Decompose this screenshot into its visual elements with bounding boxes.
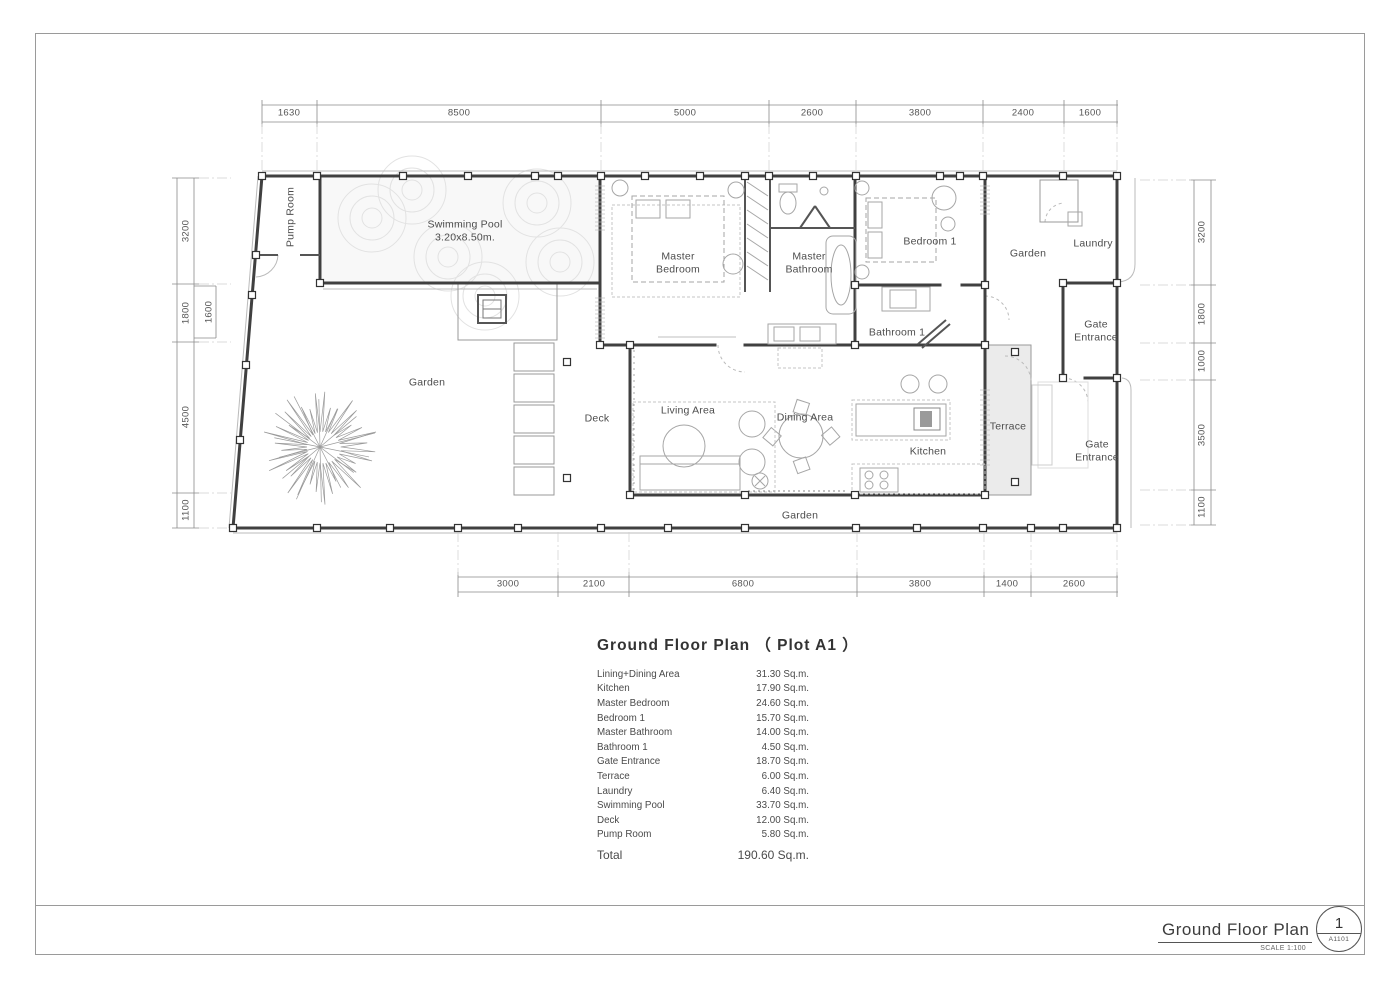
dim-top-0: 1630 xyxy=(278,108,300,119)
dim-left-3: 4500 xyxy=(181,406,192,428)
table-row: Lining+Dining Area31.30 Sq.m. xyxy=(597,667,809,682)
dim-right-0: 3200 xyxy=(1197,221,1208,243)
drawing-sheet: Pump Room Swimming Pool 3.20x8.50m. Mast… xyxy=(0,0,1400,990)
room-label-kitchen: Kitchen xyxy=(910,446,946,459)
room-label-deck: Deck xyxy=(585,413,610,426)
table-total-row: Total 190.60 Sq.m. xyxy=(597,845,809,865)
dim-bottom-5: 2600 xyxy=(1063,579,1085,590)
room-label-living-area: Living Area xyxy=(661,405,715,418)
area-table: Ground Floor Plan （ Plot A1 ） Lining+Din… xyxy=(597,633,809,865)
tree-drawing xyxy=(264,392,376,505)
dim-bottom-0: 3000 xyxy=(497,579,519,590)
dim-top-1: 8500 xyxy=(448,108,470,119)
table-row: Master Bedroom24.60 Sq.m. xyxy=(597,696,809,711)
dim-top-6: 1600 xyxy=(1079,108,1101,119)
dim-right-1: 1800 xyxy=(1197,303,1208,325)
room-label-garden-left: Garden xyxy=(409,377,445,390)
dim-top-5: 2400 xyxy=(1012,108,1034,119)
title-block: Ground Floor Plan SCALE 1:100 1 A1101 xyxy=(1158,906,1362,952)
deck-stepping-stones xyxy=(514,343,554,495)
room-label-terrace: Terrace xyxy=(990,421,1026,434)
dim-bottom-3: 3800 xyxy=(909,579,931,590)
table-row: Master Bathroom14.00 Sq.m. xyxy=(597,725,809,740)
dim-right-3: 3500 xyxy=(1197,424,1208,446)
dim-top-3: 2600 xyxy=(801,108,823,119)
table-row: Terrace6.00 Sq.m. xyxy=(597,769,809,784)
detail-bubble: 1 A1101 xyxy=(1316,906,1362,952)
sheet-title: Ground Floor Plan xyxy=(1158,920,1312,943)
dim-left-0: 3200 xyxy=(181,220,192,242)
table-row: Laundry6.40 Sq.m. xyxy=(597,784,809,799)
sheet-number: A1101 xyxy=(1317,934,1361,951)
table-row: Bedroom 115.70 Sq.m. xyxy=(597,711,809,726)
table-row: Kitchen17.90 Sq.m. xyxy=(597,682,809,697)
room-label-bedroom-1: Bedroom 1 xyxy=(903,236,956,249)
dim-right-2: 1000 xyxy=(1197,350,1208,372)
room-label-pump-room: Pump Room xyxy=(285,187,298,247)
room-label-bathroom-1: Bathroom 1 xyxy=(869,327,925,340)
table-row: Gate Entrance18.70 Sq.m. xyxy=(597,755,809,770)
area-table-rows: Lining+Dining Area31.30 Sq.m. Kitchen17.… xyxy=(597,667,809,842)
dim-bottom-2: 6800 xyxy=(732,579,754,590)
sheet-scale: SCALE 1:100 xyxy=(1260,945,1312,952)
table-row: Pump Room5.80 Sq.m. xyxy=(597,828,809,843)
dim-top-4: 3800 xyxy=(909,108,931,119)
dim-bottom-1: 2100 xyxy=(583,579,605,590)
dim-top-2: 5000 xyxy=(674,108,696,119)
room-label-dining-area: Dining Area xyxy=(777,412,833,425)
planter xyxy=(458,283,557,340)
room-label-master-bathroom: Master Bathroom xyxy=(785,250,832,275)
room-label-garden-upper-right: Garden xyxy=(1010,248,1046,261)
dim-bottom-4: 1400 xyxy=(996,579,1018,590)
room-label-gate-entrance-lower: Gate Entrance xyxy=(1075,438,1119,463)
table-row: Deck12.00 Sq.m. xyxy=(597,813,809,828)
dim-left-2: 1600 xyxy=(204,301,215,323)
detail-number: 1 xyxy=(1317,907,1361,934)
table-row: Bathroom 14.50 Sq.m. xyxy=(597,740,809,755)
room-label-gate-entrance-upper: Gate Entrance xyxy=(1074,318,1118,343)
total-label: Total xyxy=(597,848,622,862)
room-label-master-bedroom: Master Bedroom xyxy=(656,250,700,275)
dim-left-4: 1100 xyxy=(181,499,192,521)
room-label-garden-bottom: Garden xyxy=(782,510,818,523)
dim-right-4: 1100 xyxy=(1197,496,1208,518)
dim-left-1: 1800 xyxy=(181,302,192,324)
room-label-laundry: Laundry xyxy=(1073,238,1112,251)
room-label-swimming-pool: Swimming Pool 3.20x8.50m. xyxy=(428,218,503,243)
table-row: Swimming Pool33.70 Sq.m. xyxy=(597,798,809,813)
total-value: 190.60 Sq.m. xyxy=(737,848,809,862)
area-table-title: Ground Floor Plan （ Plot A1 ） xyxy=(597,633,809,655)
